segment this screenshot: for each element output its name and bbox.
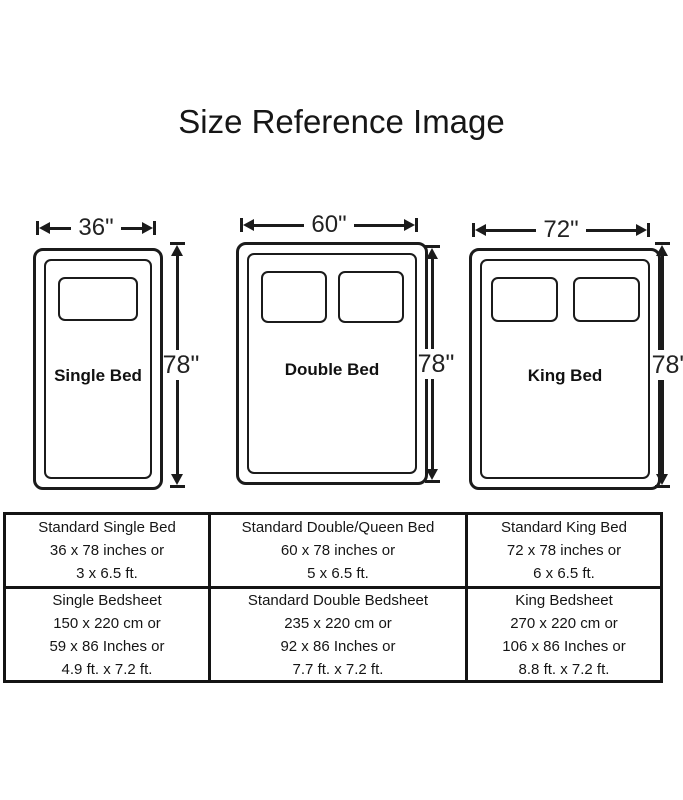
double-bed-height-label: 78": [418, 349, 455, 379]
dimension-line: [176, 256, 179, 350]
spec-line: Standard Double/Queen Bed: [242, 516, 435, 539]
dimension-line: [50, 227, 71, 230]
arrow-right-icon: [636, 224, 647, 236]
dimension-endbar: [655, 485, 670, 488]
dimension-line: [254, 224, 304, 227]
pillow-row: [249, 271, 415, 323]
pillow-row: [46, 277, 150, 321]
spec-line: 5 x 6.5 ft.: [307, 562, 369, 585]
dimension-line: [661, 380, 664, 474]
spec-line: Standard King Bed: [501, 516, 627, 539]
cell-king-bedsheet: King Bedsheet 270 x 220 cm or 106 x 86 I…: [468, 589, 660, 680]
double-bed-width-dimension: 60": [240, 214, 418, 236]
cell-standard-single-bed: Standard Single Bed 36 x 78 inches or 3 …: [6, 515, 211, 589]
spec-line: Single Bedsheet: [52, 589, 161, 612]
double-bed-outline: Double Bed: [236, 242, 428, 485]
dimension-line: [431, 259, 434, 349]
single-bed-height-label: 78": [163, 350, 200, 380]
dimension-endbar: [153, 221, 156, 235]
pillow: [491, 277, 558, 322]
spec-line: 72 x 78 inches or: [507, 539, 621, 562]
dimension-endbar: [415, 218, 418, 232]
page-title: Size Reference Image: [0, 103, 683, 141]
king-bed-width-dimension: 72": [472, 219, 650, 241]
cell-standard-king-bed: Standard King Bed 72 x 78 inches or 6 x …: [468, 515, 660, 589]
arrow-left-icon: [243, 219, 254, 231]
spec-line: 7.7 ft. x 7.2 ft.: [293, 658, 384, 681]
king-bed-outline: King Bed: [469, 248, 661, 490]
arrow-left-icon: [475, 224, 486, 236]
dimension-endbar: [170, 485, 185, 488]
spec-line: 6 x 6.5 ft.: [533, 562, 595, 585]
dimension-line: [121, 227, 142, 230]
spec-line: 150 x 220 cm or: [53, 612, 161, 635]
spec-line: 3 x 6.5 ft.: [76, 562, 138, 585]
arrow-up-icon: [426, 248, 438, 259]
dimension-line: [431, 379, 434, 469]
spec-line: 8.8 ft. x 7.2 ft.: [519, 658, 610, 681]
dimension-line: [354, 224, 404, 227]
arrow-down-icon: [426, 469, 438, 480]
dimension-line: [661, 256, 664, 350]
pillow: [261, 271, 327, 323]
pillow-row: [482, 277, 648, 322]
single-bed-width-dimension: 36": [36, 217, 156, 239]
single-bed-label: Single Bed: [46, 366, 150, 386]
king-bed-height-label: 78": [652, 350, 683, 380]
arrow-right-icon: [404, 219, 415, 231]
dimension-line: [586, 229, 636, 232]
size-reference-diagram: Size Reference Image 36" Single Bed 78" …: [0, 0, 683, 800]
arrow-up-icon: [656, 245, 668, 256]
spec-line: 270 x 220 cm or: [510, 612, 618, 635]
single-bed-height-dimension: 78": [160, 242, 194, 488]
king-bed-mattress: King Bed: [480, 259, 650, 479]
double-bed-height-dimension: 78": [415, 245, 449, 483]
pillow: [338, 271, 404, 323]
king-bed-height-dimension: 78": [645, 242, 679, 488]
pillow: [573, 277, 640, 322]
size-spec-table: Standard Single Bed 36 x 78 inches or 3 …: [3, 512, 663, 683]
dimension-line: [176, 380, 179, 474]
arrow-right-icon: [142, 222, 153, 234]
spec-line: 92 x 86 Inches or: [280, 635, 395, 658]
spec-line: 4.9 ft. x 7.2 ft.: [62, 658, 153, 681]
double-bed-mattress: Double Bed: [247, 253, 417, 474]
spec-line: 235 x 220 cm or: [284, 612, 392, 635]
cell-single-bedsheet: Single Bedsheet 150 x 220 cm or 59 x 86 …: [6, 589, 211, 680]
king-bed-width-label: 72": [536, 219, 585, 241]
spec-line: King Bedsheet: [515, 589, 613, 612]
cell-standard-double-queen-bed: Standard Double/Queen Bed 60 x 78 inches…: [211, 515, 468, 589]
pillow: [58, 277, 138, 321]
king-bed-label: King Bed: [482, 366, 648, 386]
double-bed-width-label: 60": [304, 214, 353, 236]
spec-line: 36 x 78 inches or: [50, 539, 164, 562]
double-bed-label: Double Bed: [249, 360, 415, 380]
single-bed-width-label: 36": [71, 217, 120, 239]
spec-line: Standard Double Bedsheet: [248, 589, 428, 612]
dimension-endbar: [647, 223, 650, 237]
arrow-up-icon: [171, 245, 183, 256]
cell-standard-double-bedsheet: Standard Double Bedsheet 235 x 220 cm or…: [211, 589, 468, 680]
arrow-left-icon: [39, 222, 50, 234]
spec-line: 60 x 78 inches or: [281, 539, 395, 562]
spec-line: 59 x 86 Inches or: [49, 635, 164, 658]
spec-line: 106 x 86 Inches or: [502, 635, 625, 658]
dimension-line: [486, 229, 536, 232]
arrow-down-icon: [171, 474, 183, 485]
single-bed-mattress: Single Bed: [44, 259, 152, 479]
single-bed-outline: Single Bed: [33, 248, 163, 490]
dimension-endbar: [425, 480, 440, 483]
arrow-down-icon: [656, 474, 668, 485]
spec-line: Standard Single Bed: [38, 516, 176, 539]
